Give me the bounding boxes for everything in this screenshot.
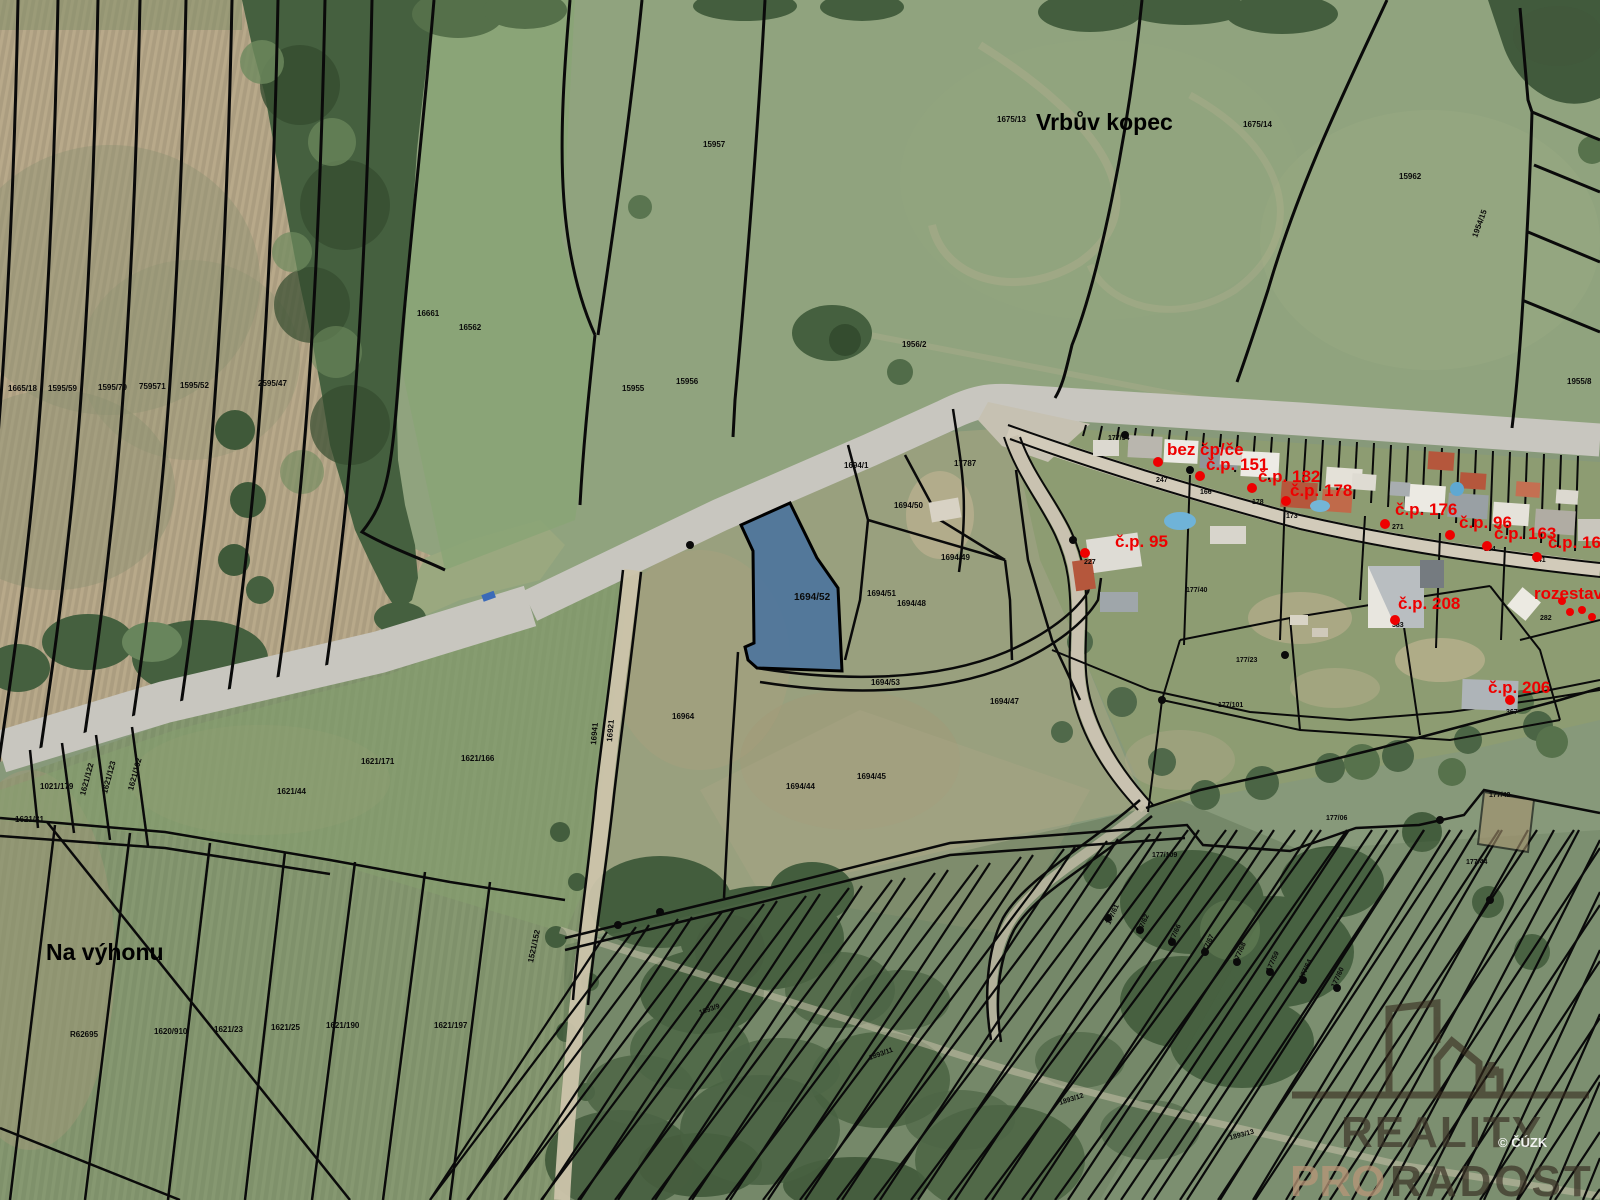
svg-text:271: 271 [1392,524,1404,531]
svg-text:17787: 17787 [954,459,977,468]
svg-text:1694/50: 1694/50 [894,501,923,510]
svg-text:177/44: 177/44 [1466,859,1488,866]
svg-text:1694/52: 1694/52 [794,592,831,603]
svg-text:R62695: R62695 [70,1030,99,1039]
svg-text:16661: 16661 [417,309,440,318]
svg-text:177/42: 177/42 [1489,792,1511,799]
svg-text:177/23: 177/23 [1236,657,1258,664]
svg-text:15962: 15962 [1399,172,1422,181]
svg-text:1675/13: 1675/13 [997,115,1026,124]
svg-text:1595/59: 1595/59 [48,384,77,393]
svg-text:166: 166 [1200,489,1212,496]
svg-text:1595/79: 1595/79 [98,383,127,392]
svg-text:367: 367 [1506,709,1518,716]
svg-text:rozestav: rozestav [1534,584,1600,603]
svg-text:1621/171: 1621/171 [361,757,395,766]
svg-text:759571: 759571 [139,382,166,391]
svg-text:č.p. 208: č.p. 208 [1398,594,1460,613]
svg-text:1694/48: 1694/48 [897,599,926,608]
svg-text:č.p. 178: č.p. 178 [1290,481,1352,500]
svg-text:© ČÚZK: © ČÚZK [1498,1135,1548,1150]
svg-text:1665/18: 1665/18 [8,384,37,393]
svg-text:Na výhonu: Na výhonu [46,939,164,965]
svg-text:177/109: 177/109 [1152,852,1177,859]
svg-text:1694/1: 1694/1 [844,461,869,470]
svg-text:1694/47: 1694/47 [990,697,1019,706]
svg-text:15957: 15957 [703,140,726,149]
svg-text:1955/8: 1955/8 [1567,377,1592,386]
svg-text:1675/14: 1675/14 [1243,120,1272,129]
svg-text:1956/2: 1956/2 [902,340,927,349]
svg-text:15956: 15956 [676,377,699,386]
svg-text:1694/44: 1694/44 [786,782,815,791]
svg-text:č.p. 176: č.p. 176 [1395,500,1457,519]
svg-text:247: 247 [1156,477,1168,484]
svg-text:177/34: 177/34 [1108,435,1130,442]
svg-text:282: 282 [1540,615,1552,622]
svg-text:1621/166: 1621/166 [461,754,495,763]
svg-text:177/06: 177/06 [1326,815,1348,822]
svg-text:1694/45: 1694/45 [857,772,886,781]
svg-text:1694/53: 1694/53 [871,678,900,687]
svg-text:RADOST: RADOST [1390,1157,1594,1200]
svg-text:1621/197: 1621/197 [434,1021,468,1030]
svg-text:1694/49: 1694/49 [941,553,970,562]
svg-text:178: 178 [1252,499,1264,506]
svg-text:227: 227 [1084,559,1096,566]
svg-text:1621/25: 1621/25 [271,1023,300,1032]
svg-text:16964: 16964 [672,712,695,721]
svg-text:1595/52: 1595/52 [180,381,209,390]
svg-text:1621/81: 1621/81 [15,815,44,824]
svg-text:1621/44: 1621/44 [277,787,306,796]
svg-text:1021/179: 1021/179 [40,782,74,791]
svg-text:16562: 16562 [459,323,482,332]
svg-text:2595/47: 2595/47 [258,379,287,388]
svg-text:173: 173 [1286,513,1298,520]
svg-text:177/40: 177/40 [1186,587,1208,594]
svg-text:1694/51: 1694/51 [867,589,896,598]
svg-text:1620/910: 1620/910 [154,1027,188,1036]
svg-text:Vrbův kopec: Vrbův kopec [1036,109,1173,135]
svg-text:1621/190: 1621/190 [326,1021,360,1030]
svg-text:č.p. 16: č.p. 16 [1548,533,1600,552]
svg-text:č.p. 206: č.p. 206 [1488,678,1550,697]
svg-text:PRO: PRO [1290,1157,1385,1200]
svg-text:1621/23: 1621/23 [214,1025,243,1034]
svg-text:č.p. 95: č.p. 95 [1115,532,1168,551]
svg-text:15955: 15955 [622,384,645,393]
svg-text:177/101: 177/101 [1218,702,1243,709]
